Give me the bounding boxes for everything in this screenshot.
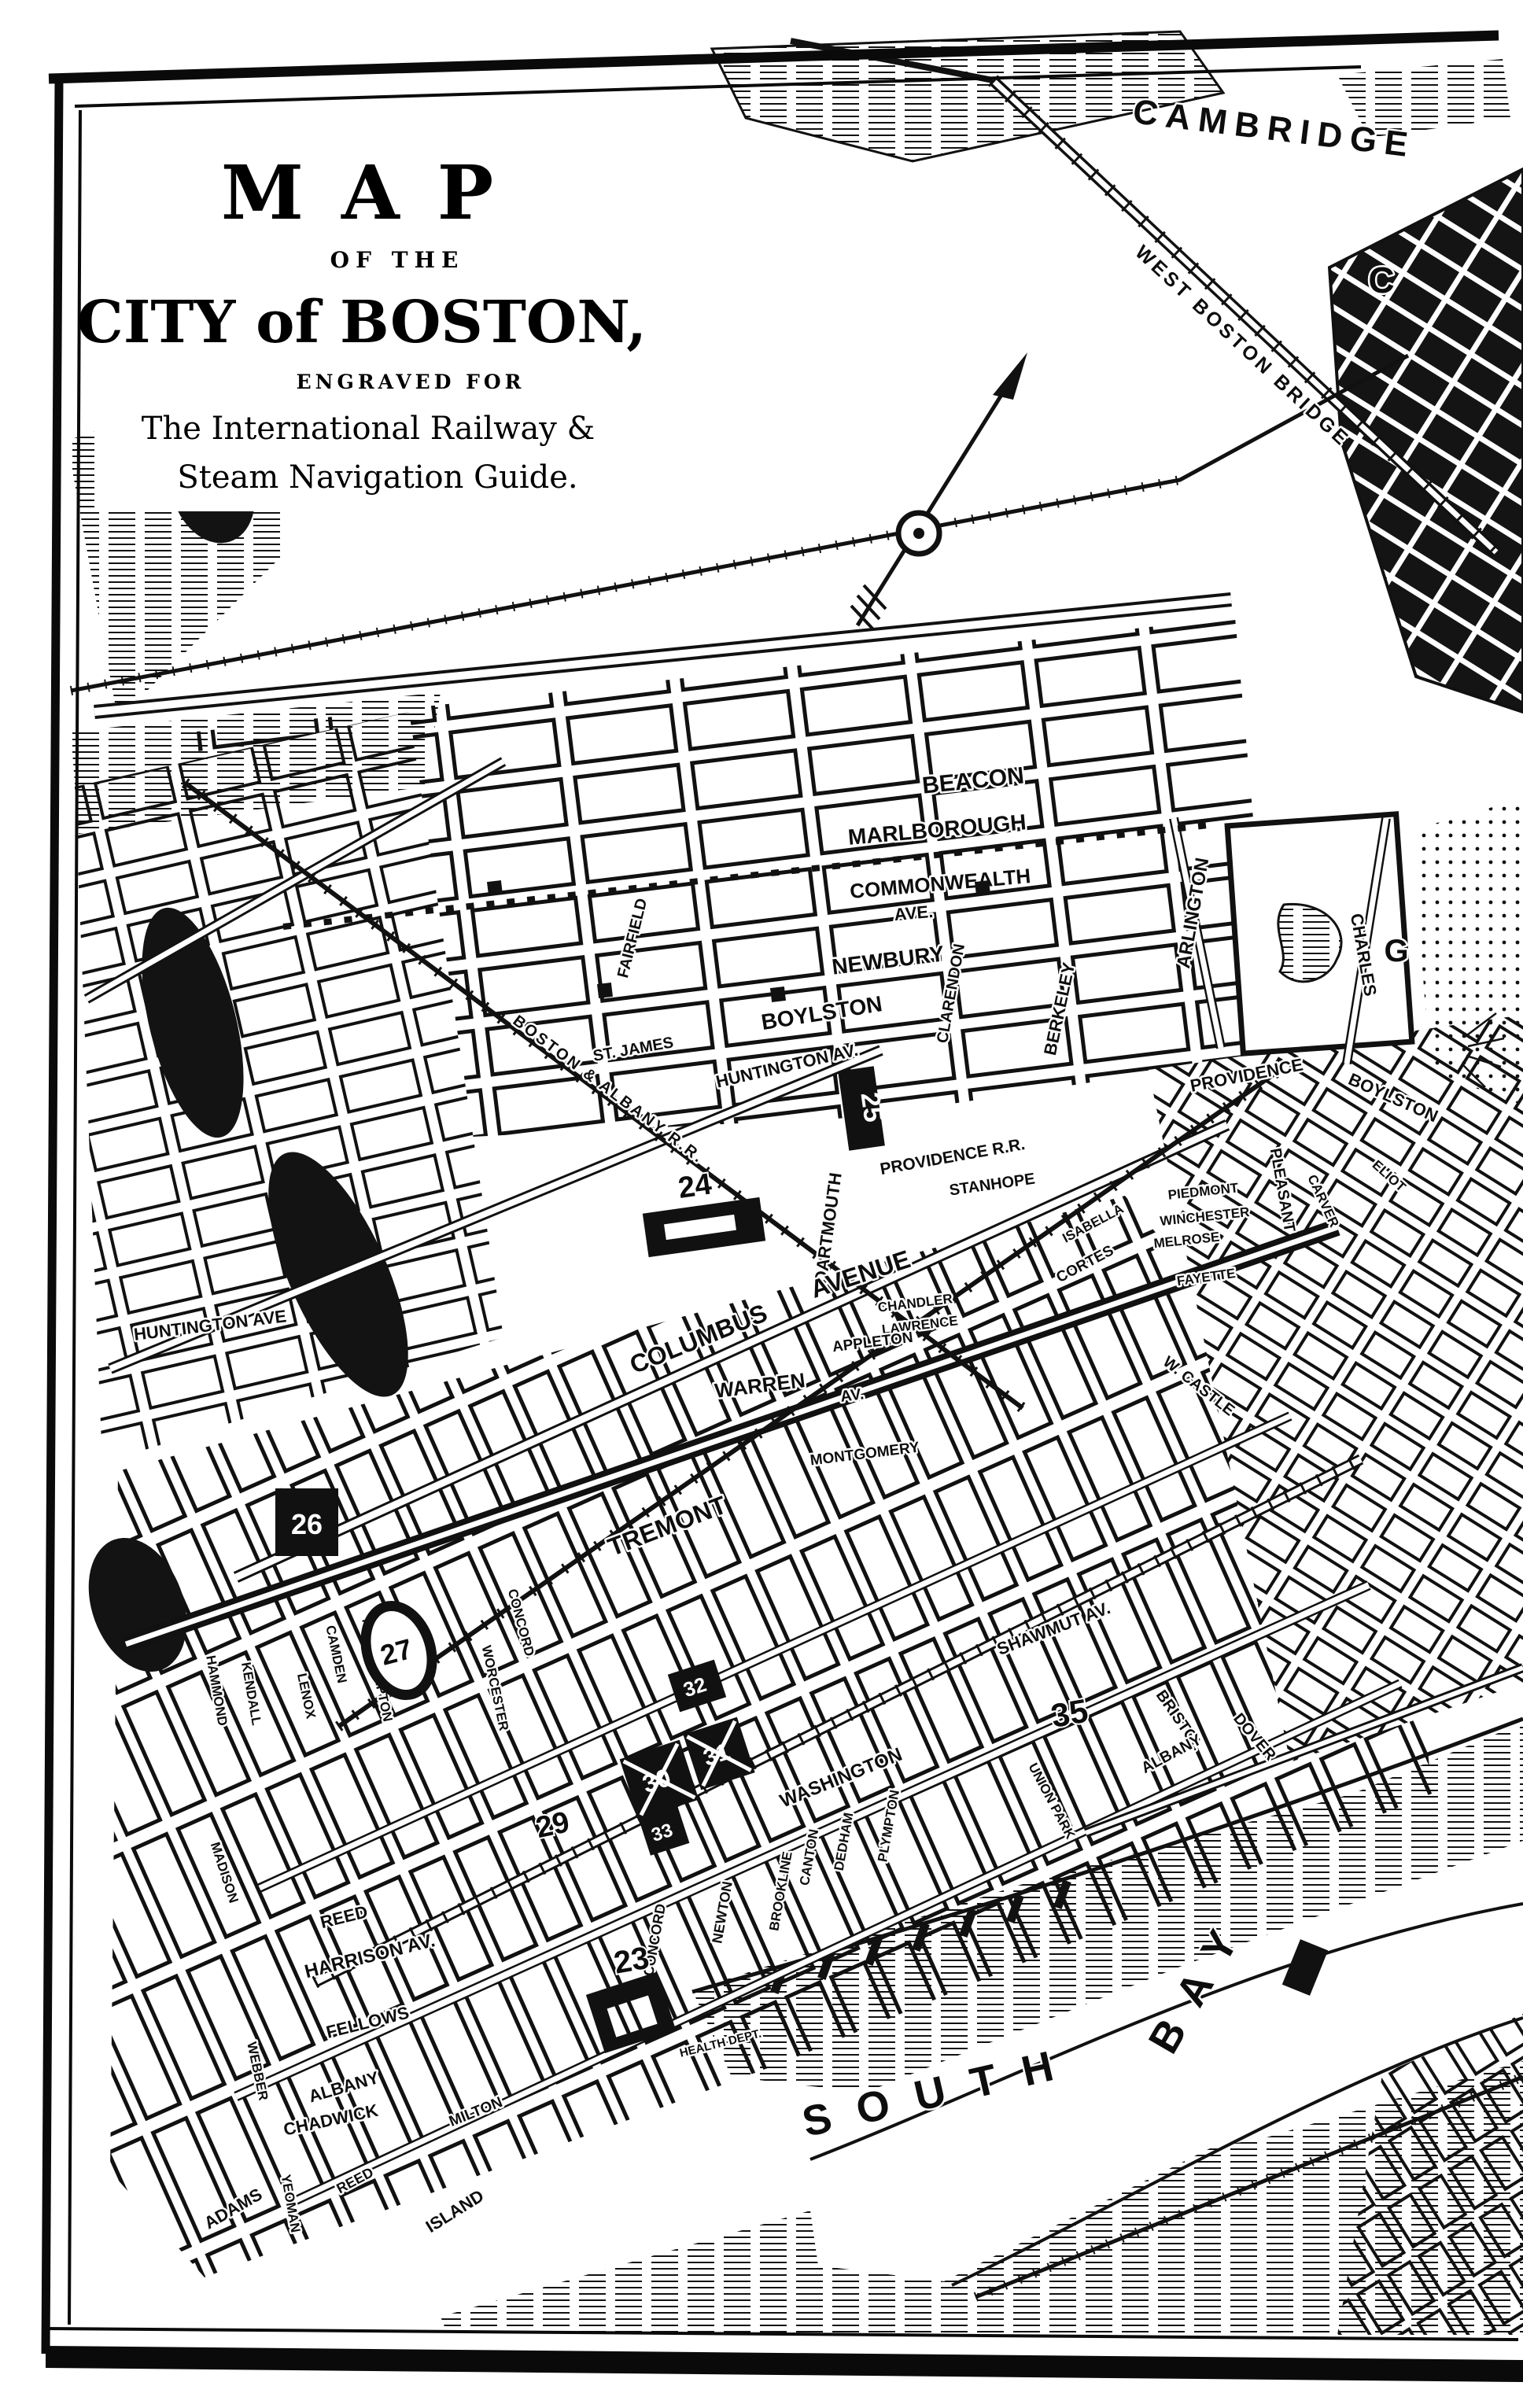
landmark-23-number: 23: [611, 1941, 651, 1981]
title-guide-line2: Steam Navigation Guide.: [177, 459, 577, 496]
compass-hub-dot-icon: [913, 528, 924, 539]
landmark-29-number: 29: [533, 1805, 572, 1845]
street-commonwealth-ave: AVE.: [893, 902, 934, 924]
map-title: MAP: [221, 149, 531, 237]
landmark-24-number: 24: [676, 1167, 714, 1204]
title-guide-line1: The International Railway &: [142, 411, 595, 447]
title-engraved-for: ENGRAVED FOR: [297, 371, 525, 393]
map-sheet: MAP OF THE CITY of BOSTON, ENGRAVED FOR …: [0, 0, 1523, 2408]
title-city-of-boston: CITY of BOSTON,: [77, 289, 647, 356]
title-block: MAP OF THE CITY of BOSTON, ENGRAVED FOR …: [77, 118, 647, 511]
label-letter-g: G: [1384, 934, 1408, 968]
landmark-35-number: 35: [1048, 1692, 1090, 1735]
street-warren-av: AV.: [839, 1385, 865, 1405]
boston-map-svg: MAP OF THE CITY of BOSTON, ENGRAVED FOR …: [0, 0, 1523, 2408]
landmark-26-number: 26: [291, 1508, 323, 1540]
landmark-26: 26: [275, 1488, 338, 1556]
title-of-the: OF THE: [330, 247, 465, 273]
label-letter-c: C: [1368, 260, 1394, 301]
landmark-25-number: 25: [854, 1090, 888, 1124]
